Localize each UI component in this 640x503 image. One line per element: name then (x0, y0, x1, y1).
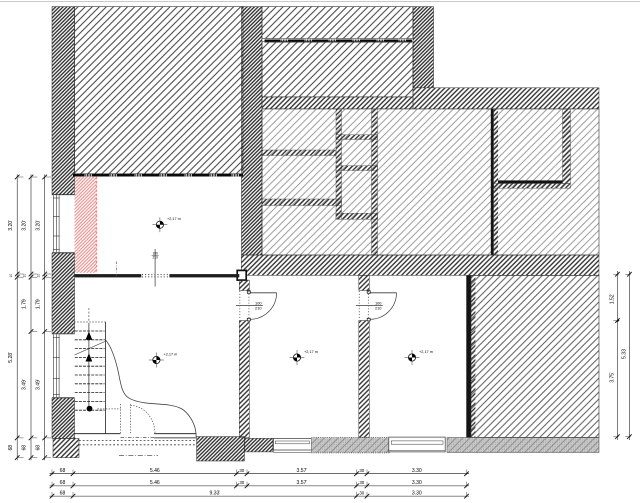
svg-text:+2,17 m: +2,17 m (167, 217, 181, 221)
svg-text:3.30: 3.30 (412, 468, 422, 474)
svg-text:10: 10 (36, 274, 40, 278)
svg-text:1.79: 1.79 (22, 299, 28, 309)
svg-text:30: 30 (359, 490, 364, 495)
svg-text:68: 68 (60, 480, 66, 486)
svg-text:68: 68 (35, 445, 41, 451)
svg-text:30: 30 (359, 480, 364, 485)
svg-text:68: 68 (60, 490, 66, 496)
svg-text:3.49′: 3.49′ (35, 379, 41, 390)
svg-text:210: 210 (375, 305, 382, 310)
svg-text:5.46: 5.46 (150, 480, 160, 486)
svg-text:9.33′: 9.33′ (209, 490, 220, 496)
svg-text:1.79: 1.79 (35, 299, 41, 309)
svg-text:5.33: 5.33 (622, 349, 628, 359)
svg-text:30: 30 (359, 468, 364, 473)
svg-text:30: 30 (239, 480, 244, 485)
svg-text:10: 10 (9, 274, 13, 278)
svg-text:3.57′: 3.57′ (296, 480, 307, 486)
svg-text:5.28′: 5.28′ (8, 352, 14, 363)
svg-text:3.75′: 3.75′ (609, 372, 615, 383)
svg-text:68: 68 (8, 445, 14, 451)
svg-text:1.52′: 1.52′ (609, 293, 615, 304)
svg-text:30: 30 (239, 468, 244, 473)
svg-text:3.30: 3.30 (412, 480, 422, 486)
svg-text:5.46: 5.46 (150, 468, 160, 474)
svg-text:68: 68 (22, 445, 28, 451)
svg-text:+2,17 m: +2,17 m (304, 350, 318, 354)
svg-text:+2,17 m: +2,17 m (164, 352, 178, 356)
svg-text:10: 10 (23, 274, 27, 278)
svg-text:3.57′: 3.57′ (296, 468, 307, 474)
svg-text:3.20′: 3.20′ (8, 220, 14, 231)
svg-text:210: 210 (255, 305, 262, 310)
svg-text:3.20′: 3.20′ (22, 220, 28, 231)
svg-text:3.49′: 3.49′ (22, 379, 28, 390)
svg-text:3.30: 3.30 (412, 490, 422, 496)
svg-text:3.20′: 3.20′ (35, 220, 41, 231)
svg-text:210: 210 (152, 256, 158, 260)
svg-text:+2,17 m: +2,17 m (419, 350, 433, 354)
svg-text:68: 68 (60, 468, 66, 474)
